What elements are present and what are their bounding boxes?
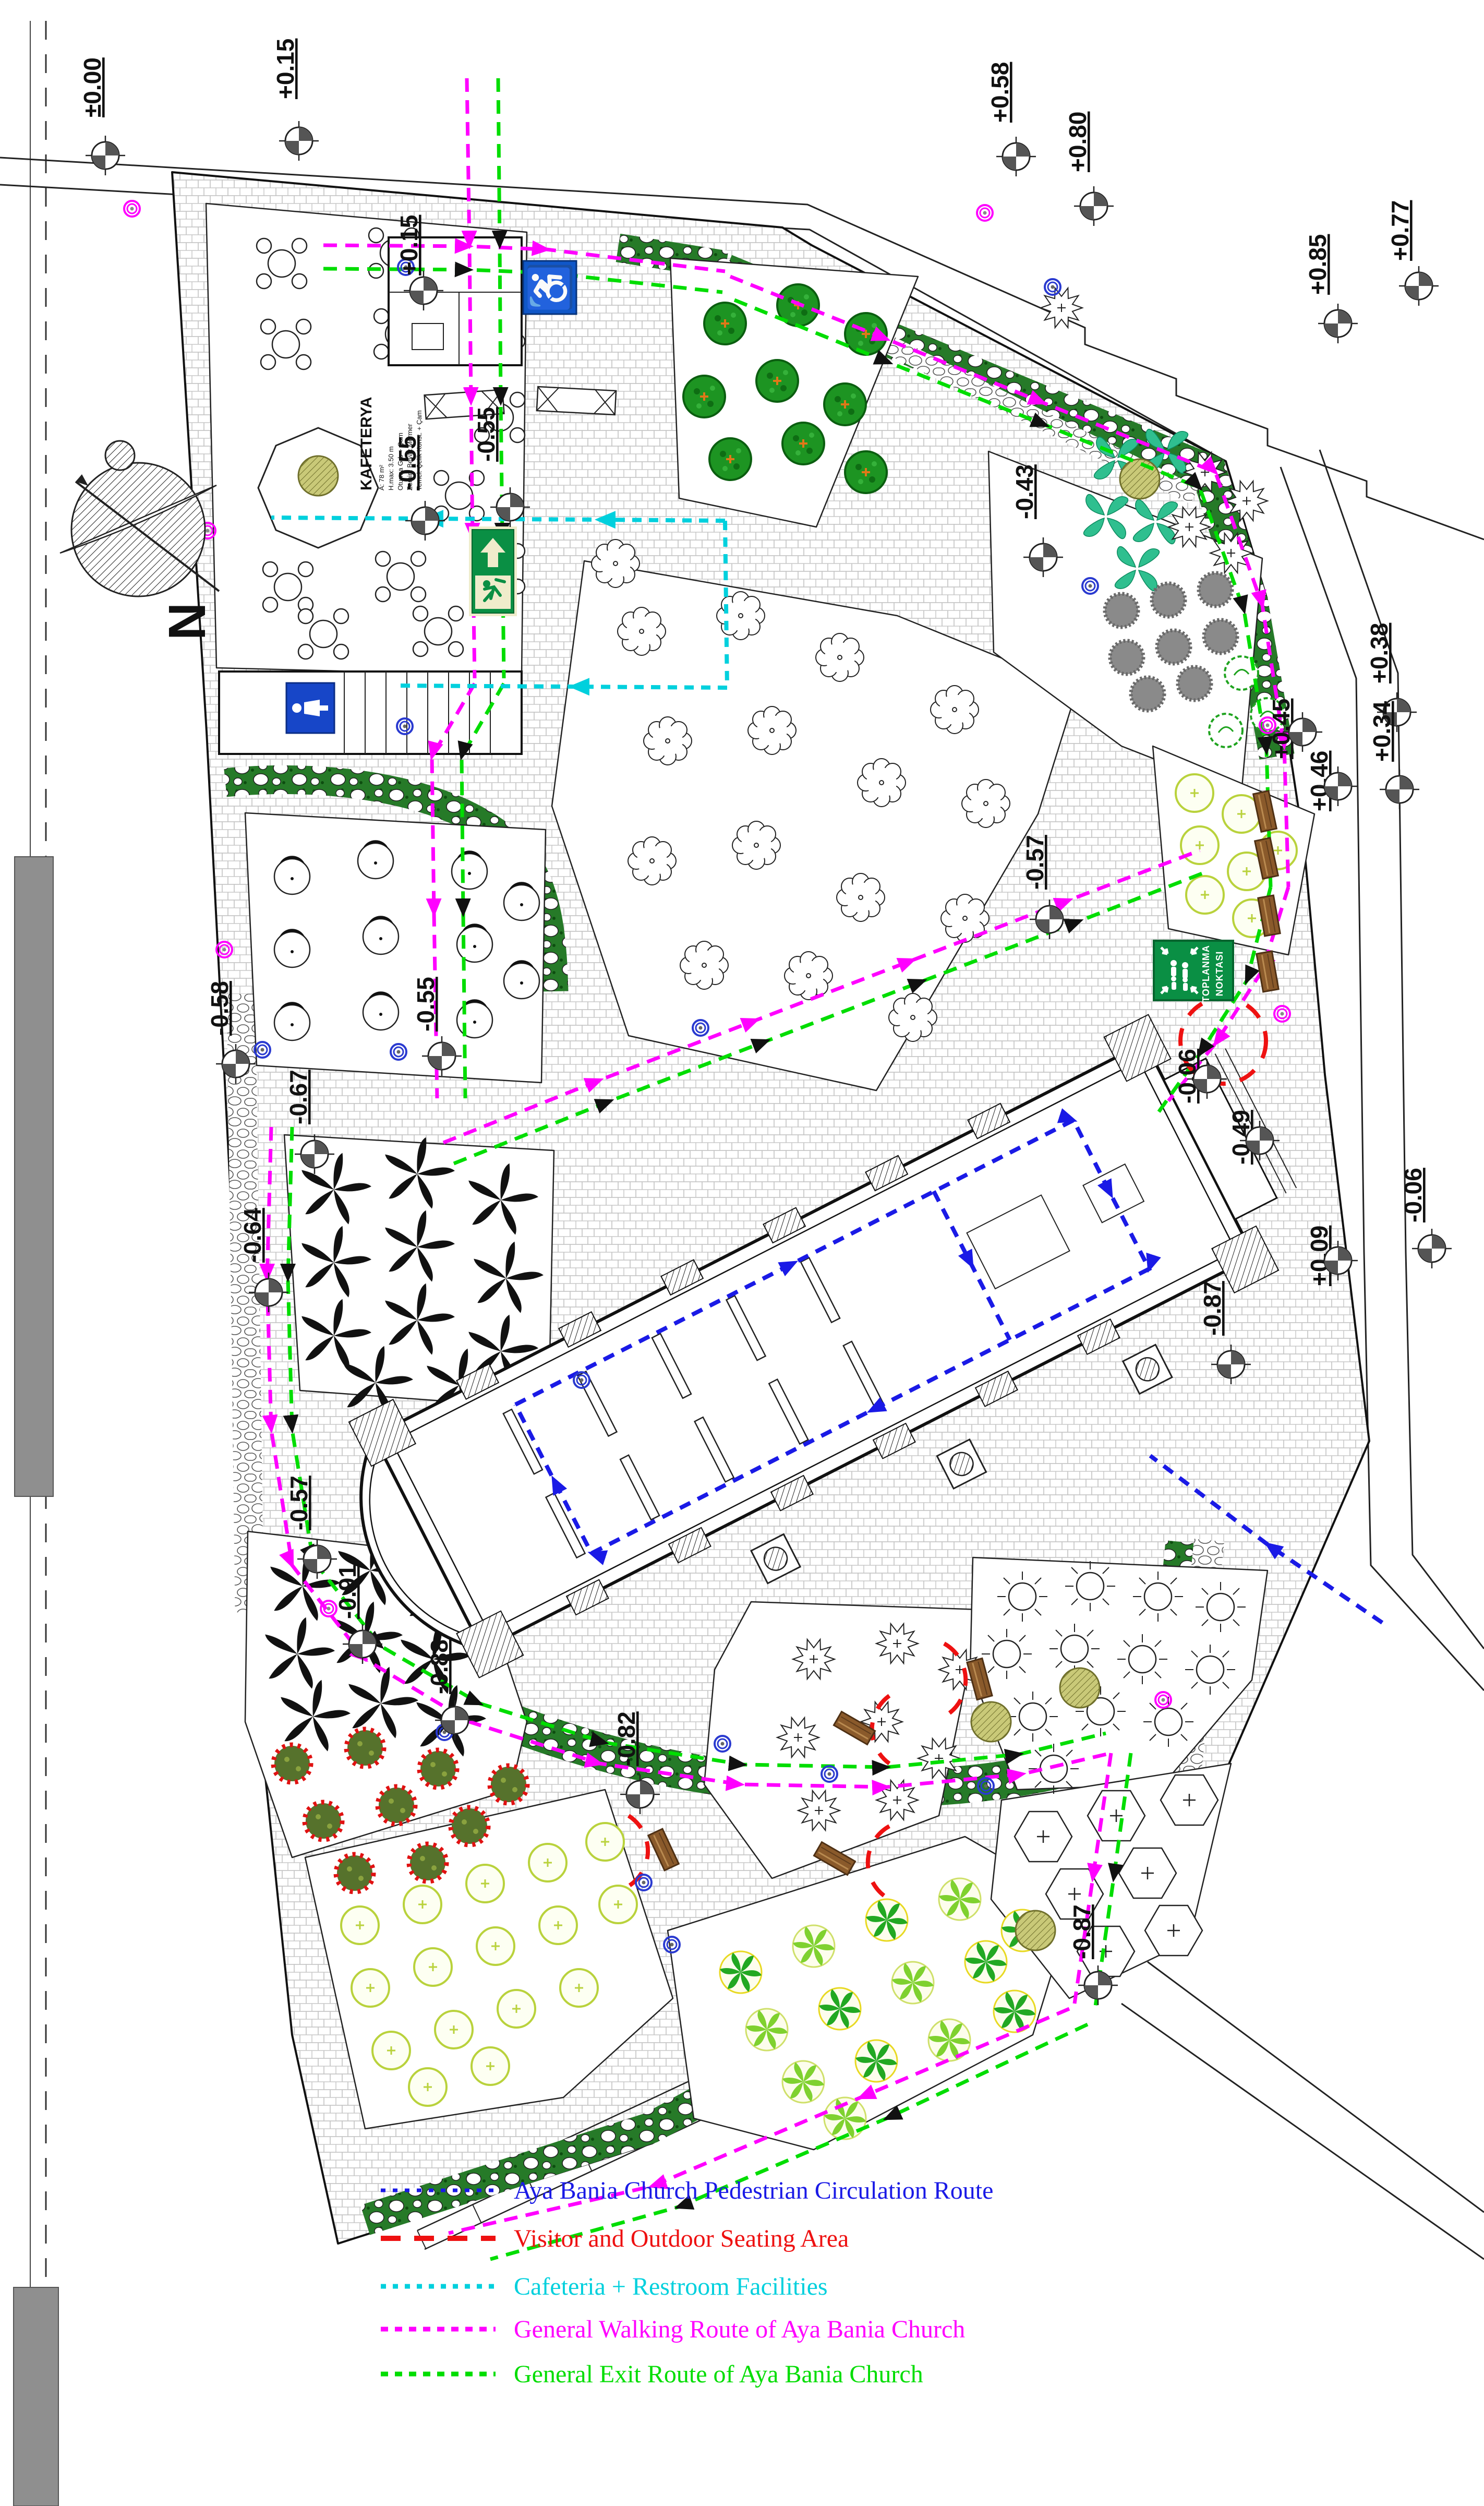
picnic-table bbox=[537, 387, 616, 415]
benchmark-icon bbox=[1380, 770, 1419, 809]
benchmark-icon bbox=[1074, 186, 1114, 226]
level-label: -0.55 bbox=[412, 977, 439, 1032]
level-label: +0.15 bbox=[272, 39, 299, 99]
cafeteria-spec: A: 78 m² bbox=[378, 464, 385, 490]
emergency-exit-sign bbox=[469, 526, 517, 616]
assembly-sign-line1: TOPLANMA bbox=[1201, 945, 1211, 1002]
wheelchair-icon: ♿ bbox=[527, 262, 573, 313]
level-label: -0.91 bbox=[334, 1564, 361, 1619]
level-label: -0.64 bbox=[239, 1208, 266, 1263]
legend-label: Aya Bania Church Pedestrian Circulation … bbox=[514, 2177, 993, 2204]
level-label: -0.06 bbox=[1399, 1168, 1427, 1222]
level-label: -0.57 bbox=[285, 1476, 312, 1530]
level-label: +0.77 bbox=[1386, 200, 1414, 261]
neighbour-building bbox=[14, 2287, 58, 2506]
level-label: +0.85 bbox=[1304, 234, 1331, 295]
level-label: -0.67 bbox=[285, 1070, 312, 1124]
benchmark-icon bbox=[1412, 1229, 1452, 1268]
benchmark-icon bbox=[279, 121, 319, 161]
benchmark-icon bbox=[1399, 266, 1439, 306]
cafeteria-title: KAFETERYA bbox=[358, 397, 375, 490]
level-label: -0.55 bbox=[394, 436, 421, 490]
assembly-point-sign: TOPLANMA NOKTASI bbox=[1154, 941, 1233, 1002]
level-label: -0.88 bbox=[426, 1639, 453, 1694]
legend-item: Visitor and Outdoor Seating Area bbox=[381, 2225, 849, 2252]
level-label: -0.57 bbox=[1021, 835, 1048, 890]
legend-label: General Walking Route of Aya Bania Churc… bbox=[514, 2316, 965, 2343]
level-label: -0.87 bbox=[1068, 1904, 1095, 1959]
site-plan-canvas: KAFETERYA A: 78 m² H.max: 3.50 m Oturma … bbox=[0, 0, 1484, 2506]
level-label: -0.43 bbox=[1011, 464, 1038, 519]
assembly-sign-line2: NOKTASI bbox=[1214, 951, 1225, 997]
benchmark-icon bbox=[1318, 304, 1358, 343]
road-edge-bottom-right bbox=[1148, 1962, 1484, 2212]
cobble-left-band bbox=[241, 994, 249, 1612]
level-label: -0.58 bbox=[206, 981, 233, 1036]
level-label: -0.55 bbox=[473, 407, 500, 462]
legend-label: General Exit Route of Aya Bania Church bbox=[514, 2360, 923, 2388]
level-label: +0.58 bbox=[986, 62, 1014, 123]
road-edge-bottom-right bbox=[1121, 2004, 1484, 2259]
wc-sign bbox=[286, 683, 334, 733]
level-label: +0.80 bbox=[1064, 112, 1091, 172]
legend-label: Visitor and Outdoor Seating Area bbox=[514, 2225, 849, 2252]
exit-runner-icon bbox=[475, 575, 511, 609]
level-label: -0.87 bbox=[1199, 1281, 1226, 1336]
level-label: +0.38 bbox=[1366, 623, 1393, 684]
legend-item: General Exit Route of Aya Bania Church bbox=[381, 2360, 923, 2388]
north-label: N bbox=[158, 603, 216, 640]
accessible-sign: ♿ bbox=[523, 261, 576, 314]
benchmark-icon bbox=[86, 136, 125, 175]
legend-item: General Walking Route of Aya Bania Churc… bbox=[381, 2316, 965, 2343]
legend-label: Cafeteria + Restroom Facilities bbox=[514, 2273, 828, 2300]
level-label: +0.34 bbox=[1368, 701, 1395, 762]
legend-item: Cafeteria + Restroom Facilities bbox=[381, 2273, 828, 2300]
legend: Aya Bania Church Pedestrian Circulation … bbox=[381, 2177, 993, 2388]
benchmark-icon bbox=[996, 137, 1036, 176]
level-label: ±0.00 bbox=[79, 57, 106, 117]
level-label: -0.82 bbox=[613, 1711, 640, 1766]
restroom-building bbox=[219, 672, 522, 754]
neighbour-building bbox=[15, 857, 53, 1496]
level-label: +0.15 bbox=[395, 215, 423, 275]
